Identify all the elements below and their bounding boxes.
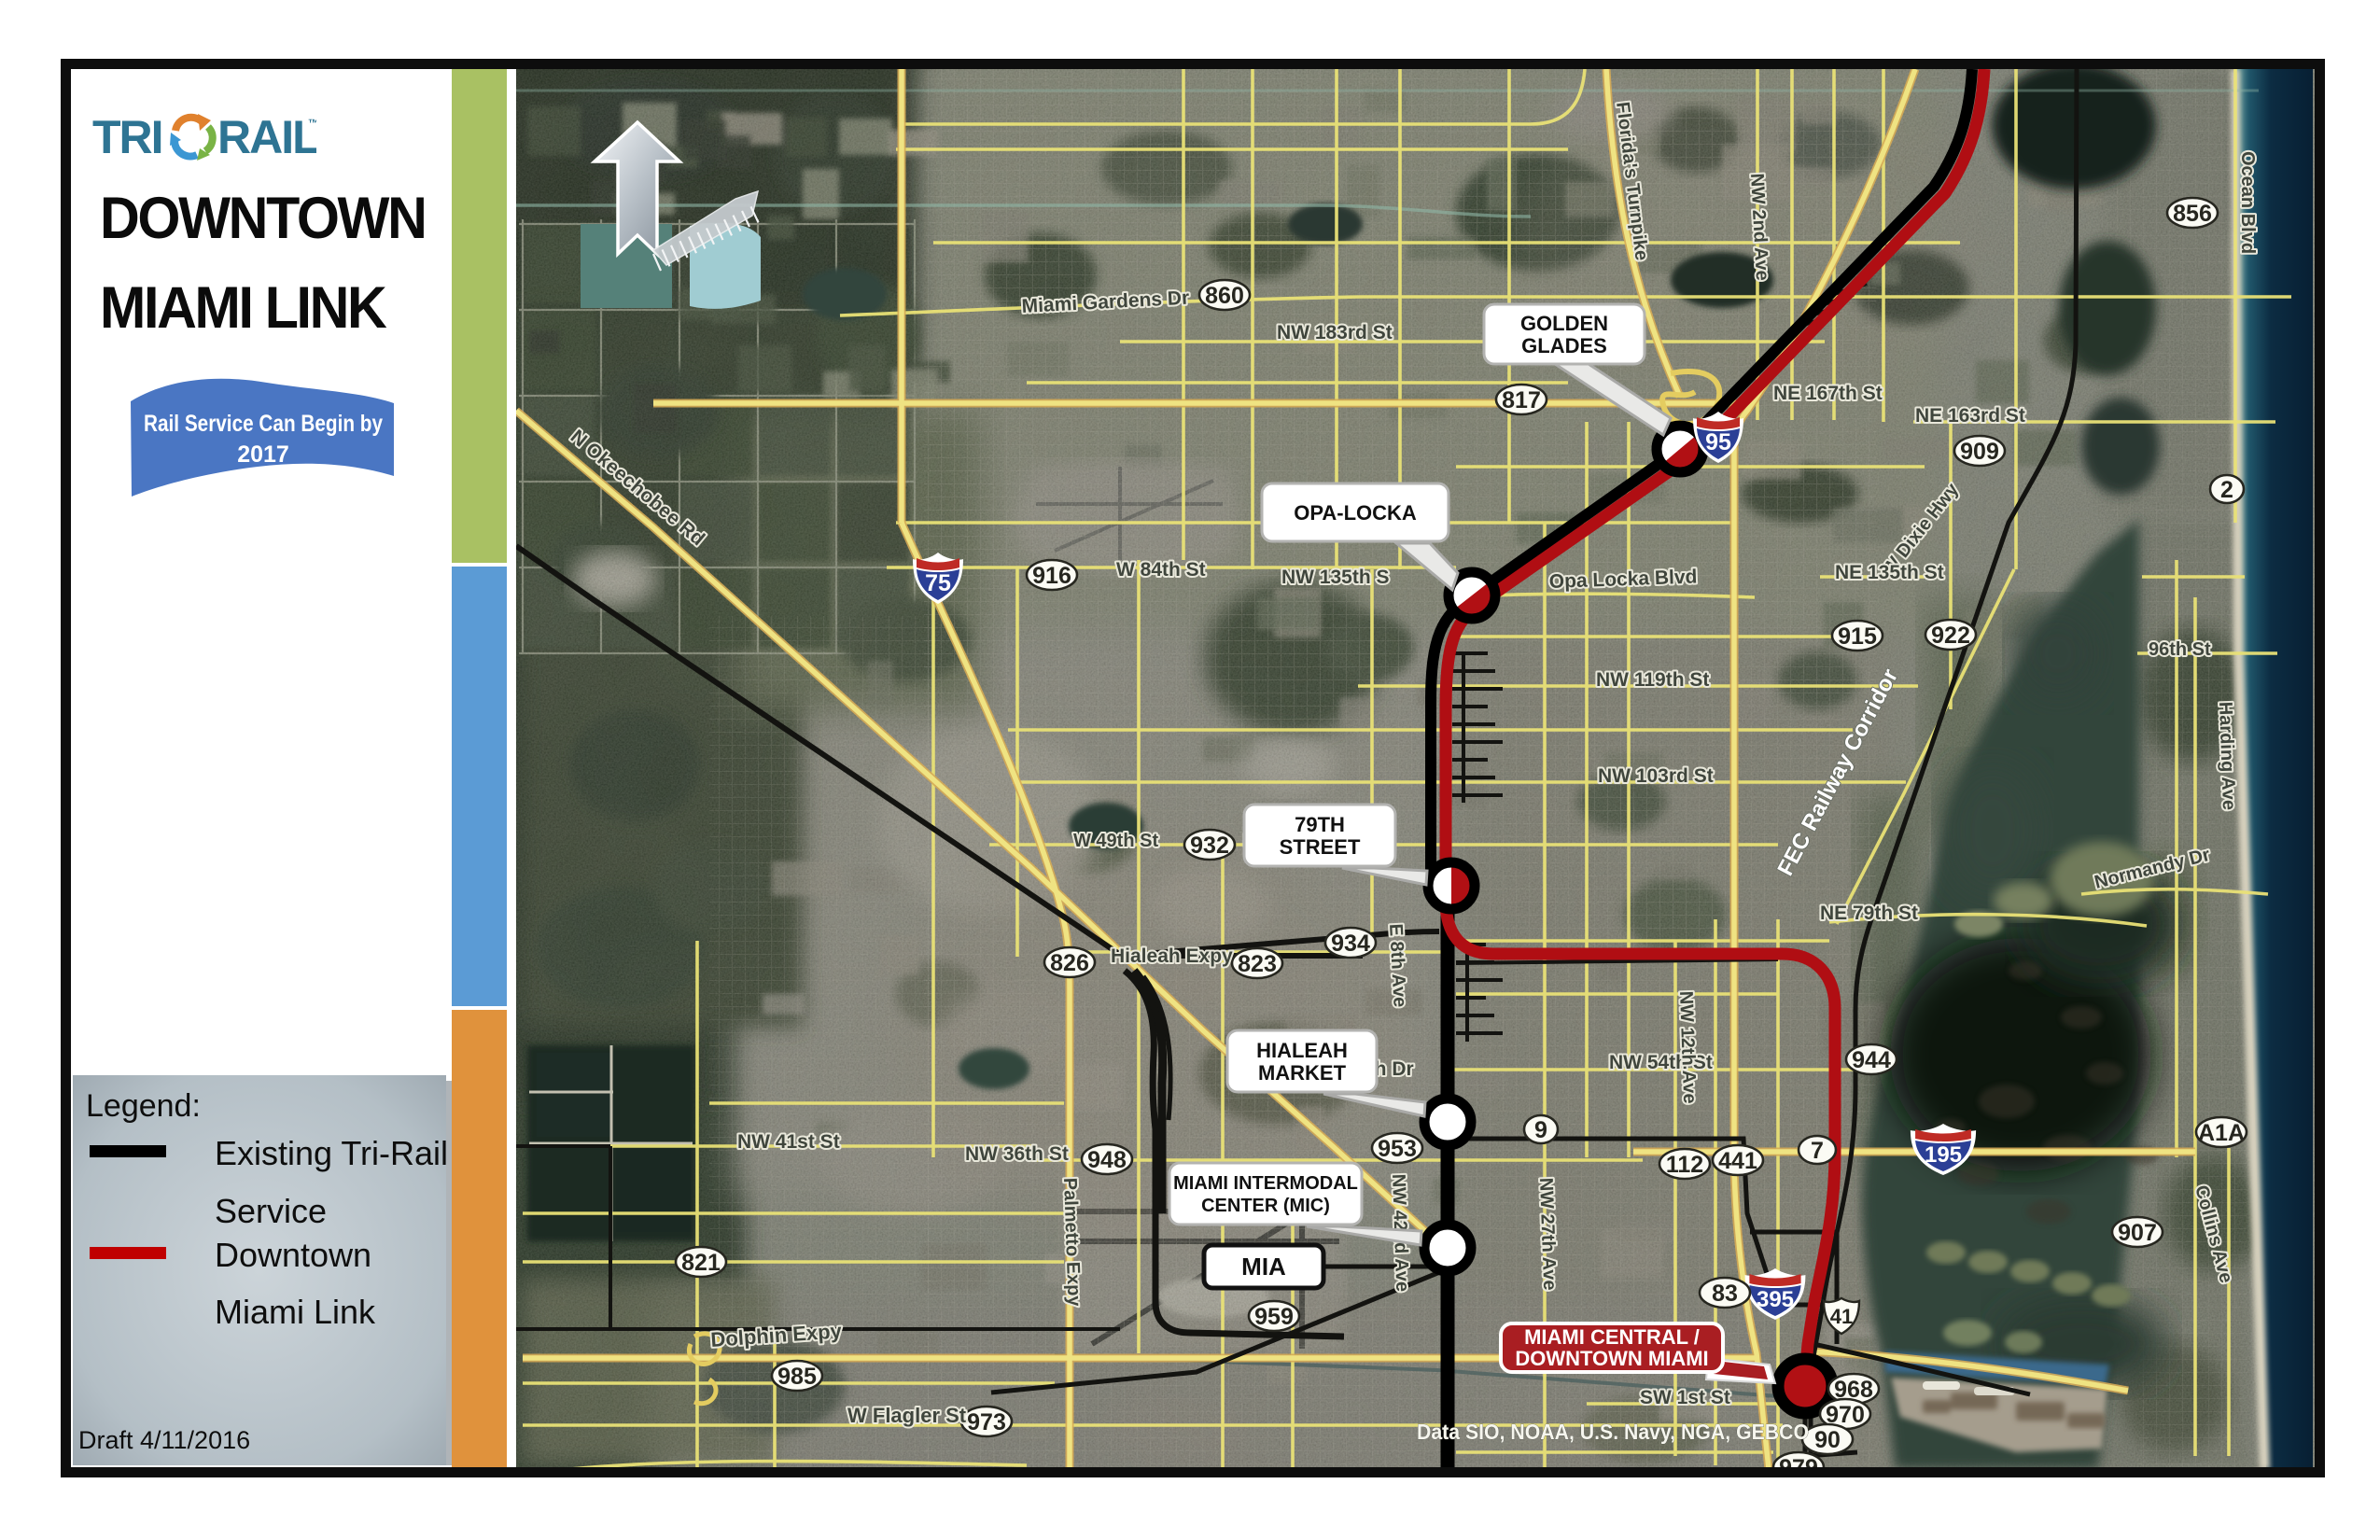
- svg-text:41: 41: [1830, 1305, 1853, 1328]
- svg-text:NE 135th St: NE 135th St: [1835, 562, 1944, 583]
- svg-text:GOLDEN: GOLDEN: [1520, 312, 1608, 335]
- svg-text:NW 36th St: NW 36th St: [965, 1143, 1069, 1165]
- svg-text:MIA: MIA: [1241, 1253, 1286, 1281]
- svg-text:922: 922: [1931, 623, 1970, 649]
- svg-text:823: 823: [1238, 951, 1277, 977]
- svg-text:860: 860: [1205, 283, 1244, 309]
- svg-text:CENTER (MIC): CENTER (MIC): [1201, 1196, 1330, 1216]
- svg-text:915: 915: [1838, 623, 1877, 650]
- svg-text:DOWNTOWN MIAMI: DOWNTOWN MIAMI: [1515, 1347, 1708, 1370]
- svg-text:W 49th St: W 49th St: [1073, 831, 1158, 851]
- svg-text:Draft 4/11/2016: Draft 4/11/2016: [78, 1426, 250, 1454]
- svg-text:STREET: STREET: [1280, 835, 1361, 859]
- svg-text:441: 441: [1718, 1148, 1757, 1174]
- svg-text:NW 27th Ave: NW 27th Ave: [1535, 1177, 1560, 1290]
- svg-text:934: 934: [1331, 931, 1370, 957]
- svg-text:W 84th St: W 84th St: [1116, 559, 1206, 581]
- svg-text:HIALEAH: HIALEAH: [1256, 1039, 1348, 1062]
- svg-text:985: 985: [777, 1364, 817, 1390]
- svg-text:195: 195: [1925, 1142, 1962, 1168]
- svg-text:75: 75: [925, 570, 951, 596]
- svg-text:MIAMI INTERMODAL: MIAMI INTERMODAL: [1173, 1173, 1358, 1194]
- svg-text:NW 103rd St: NW 103rd St: [1598, 765, 1714, 787]
- svg-text:821: 821: [681, 1250, 721, 1276]
- svg-text:2017: 2017: [237, 441, 289, 468]
- svg-text:909: 909: [1960, 439, 1999, 465]
- svg-text:395: 395: [1757, 1287, 1794, 1312]
- svg-text:916: 916: [1032, 563, 1071, 589]
- svg-text:W Flagler St: W Flagler St: [847, 1404, 967, 1427]
- svg-text:79TH: 79TH: [1295, 813, 1345, 836]
- svg-text:932: 932: [1190, 833, 1229, 859]
- svg-text:979: 979: [1779, 1455, 1818, 1467]
- svg-text:NW 119th St: NW 119th St: [1596, 669, 1709, 691]
- svg-text:RAIL: RAIL: [217, 112, 316, 162]
- svg-text:907: 907: [2118, 1220, 2157, 1246]
- svg-text:A1A: A1A: [2198, 1120, 2245, 1146]
- svg-text:Data SIO, NOAA, U.S. Navy, NGA: Data SIO, NOAA, U.S. Navy, NGA, GEBCO: [1417, 1420, 1809, 1444]
- svg-text:7: 7: [1811, 1138, 1824, 1164]
- svg-text:953: 953: [1378, 1136, 1417, 1162]
- svg-text:NE 167th St: NE 167th St: [1773, 383, 1883, 404]
- svg-text:MARKET: MARKET: [1258, 1061, 1347, 1085]
- svg-text:9: 9: [1534, 1117, 1547, 1143]
- svg-text:856: 856: [2173, 201, 2212, 227]
- svg-text:948: 948: [1087, 1147, 1127, 1173]
- svg-text:GLADES: GLADES: [1521, 334, 1607, 357]
- svg-text:TRI: TRI: [92, 112, 162, 162]
- svg-text:Hialeah Expy: Hialeah Expy: [1111, 945, 1233, 967]
- svg-text:944: 944: [1852, 1047, 1891, 1073]
- svg-text:Existing Tri-Rail: Existing Tri-Rail: [215, 1134, 448, 1172]
- svg-text:83: 83: [1712, 1281, 1738, 1307]
- svg-text:MIAMI CENTRAL /: MIAMI CENTRAL /: [1524, 1325, 1700, 1349]
- svg-text:SW 1st St: SW 1st St: [1640, 1387, 1730, 1408]
- svg-text:90: 90: [1814, 1427, 1841, 1453]
- svg-text:NE 79th St: NE 79th St: [1820, 903, 1918, 924]
- svg-text:112: 112: [1666, 1152, 1703, 1178]
- svg-text:826: 826: [1050, 950, 1089, 976]
- svg-text:Downtown: Downtown: [215, 1236, 371, 1274]
- svg-text:NW 135th S: NW 135th S: [1281, 567, 1390, 588]
- svg-text:Legend:: Legend:: [86, 1088, 201, 1124]
- svg-text:NW 12th Ave: NW 12th Ave: [1675, 990, 1700, 1103]
- svg-text:NE 163rd St: NE 163rd St: [1915, 405, 2025, 427]
- svg-text:Harding Ave: Harding Ave: [2215, 701, 2239, 810]
- svg-text:NW 41st St: NW 41st St: [737, 1131, 840, 1153]
- svg-text:959: 959: [1254, 1304, 1294, 1330]
- svg-text:973: 973: [967, 1409, 1006, 1435]
- svg-text:E 8th Ave: E 8th Ave: [1385, 923, 1410, 1008]
- svg-text:2: 2: [2220, 477, 2233, 503]
- svg-text:Rail Service Can Begin by: Rail Service Can Begin by: [144, 411, 383, 437]
- svg-text:95: 95: [1705, 429, 1731, 455]
- svg-text:OPA-LOCKA: OPA-LOCKA: [1294, 501, 1417, 525]
- svg-text:NW 183rd St: NW 183rd St: [1277, 322, 1393, 343]
- svg-text:™: ™: [308, 117, 316, 130]
- svg-text:817: 817: [1502, 387, 1541, 413]
- svg-text:Service: Service: [215, 1192, 327, 1230]
- svg-text:Miami Link: Miami Link: [215, 1293, 376, 1331]
- svg-text:Ocean Blvd: Ocean Blvd: [2237, 151, 2258, 254]
- svg-text:96th St: 96th St: [2149, 639, 2211, 660]
